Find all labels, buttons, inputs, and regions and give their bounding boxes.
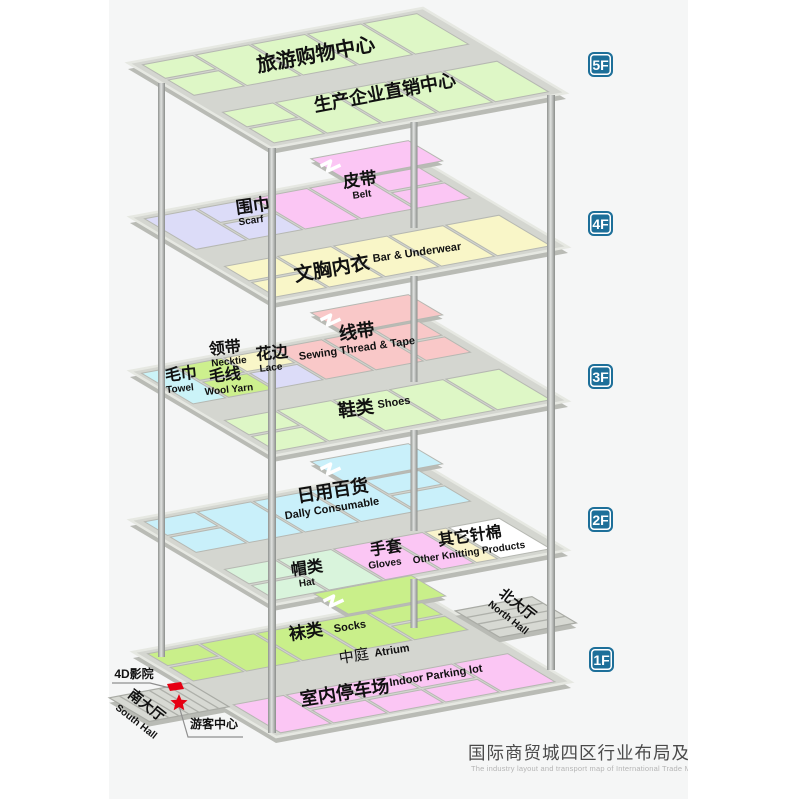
column-back-segment: [411, 579, 418, 628]
column-back-segment: [411, 122, 418, 228]
label-visitor-center: 游客中心: [190, 716, 238, 731]
column-front: [547, 95, 555, 670]
column-back-segment: [411, 276, 418, 382]
floor-badge-2f: 2F: [588, 507, 613, 532]
floor-badge-4f: 4F: [588, 211, 613, 236]
floor-badge-3f: 3F: [588, 364, 613, 389]
label-3f-lace-zh: 花边: [255, 342, 290, 364]
building-isometric-svg: 旅游购物中心生产企业直销中心围巾Scarf皮带Belt文胸内衣Bar & Und…: [0, 0, 799, 799]
column-back-segment: [411, 430, 418, 531]
label-2f-hat-en: Hat: [298, 576, 316, 589]
floor-badge-5f: 5F: [588, 52, 613, 77]
column-front: [268, 148, 276, 733]
floor-layout-map: 旅游购物中心生产企业直销中心围巾Scarf皮带Belt文胸内衣Bar & Und…: [0, 0, 799, 799]
floor-badge-1f: 1F: [589, 647, 614, 672]
label-4d-cinema: 4D影院: [114, 666, 153, 681]
